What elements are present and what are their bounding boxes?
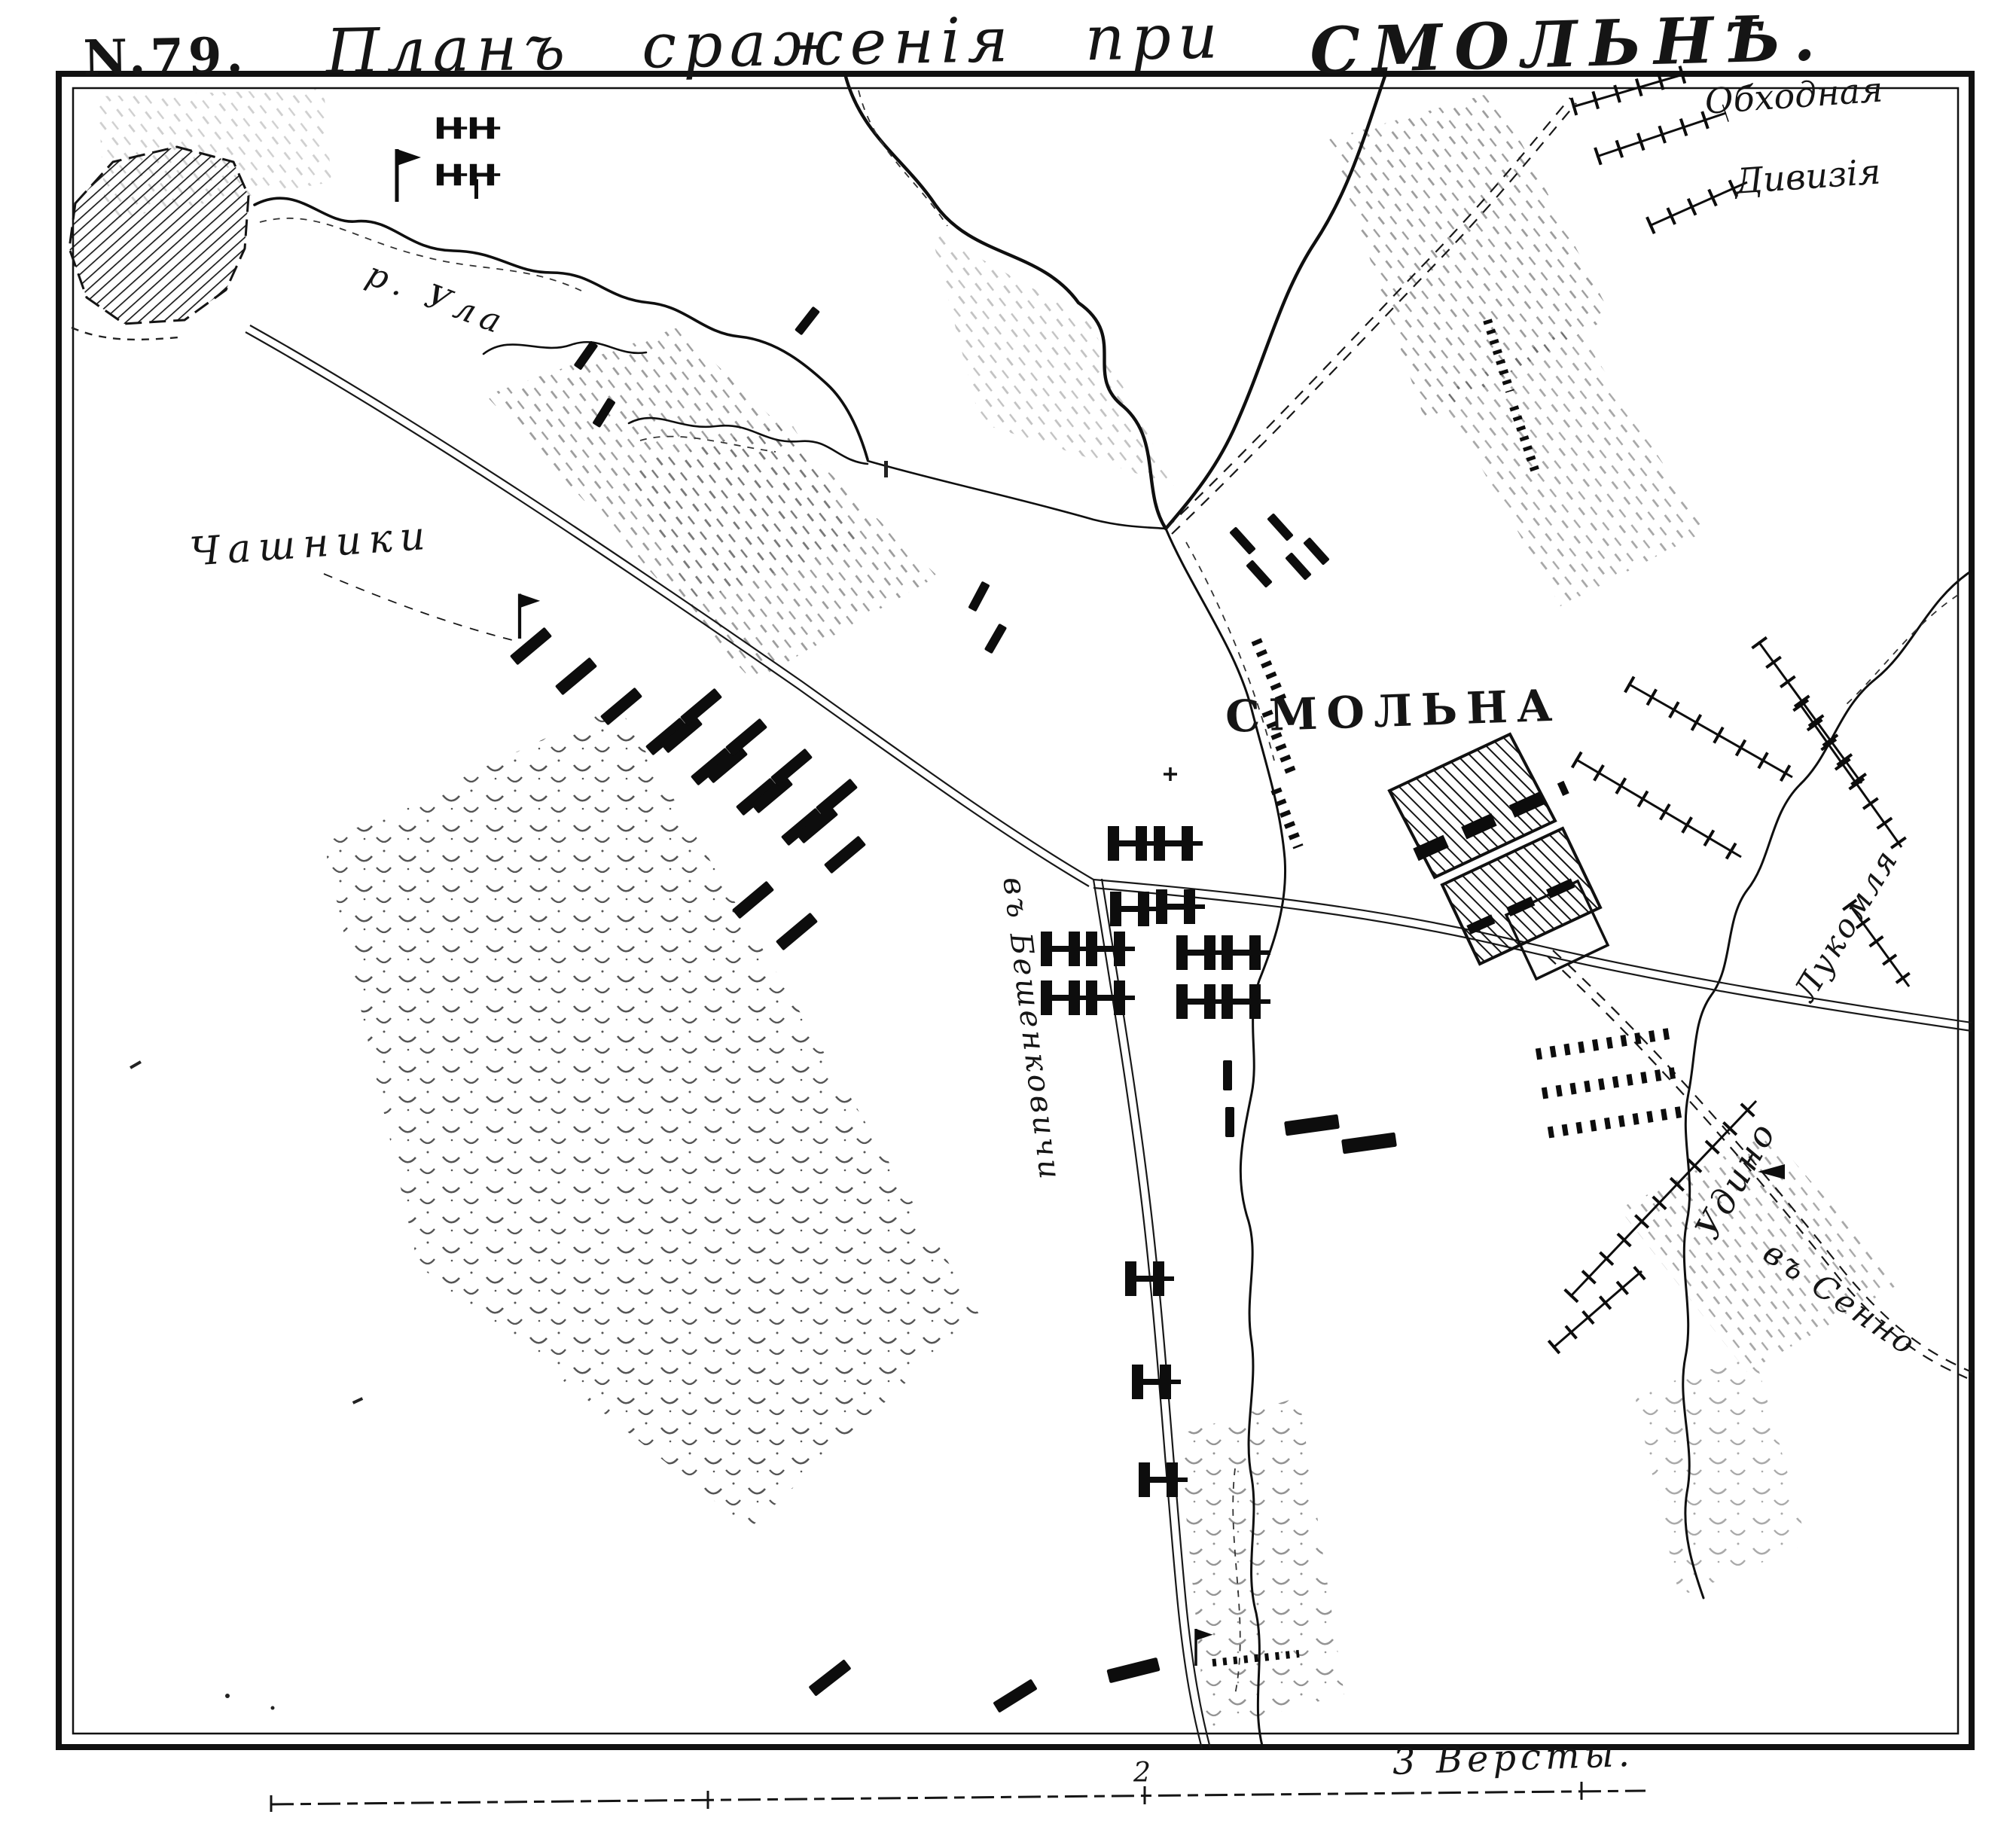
- infantry-battalions-center: [1041, 826, 1397, 1154]
- infantry-column-south: [1125, 1261, 1188, 1497]
- scale-mark-2: 2: [1133, 1758, 1151, 1789]
- map-number: N.79.: [83, 27, 248, 87]
- chashniki-town-area: [69, 147, 249, 340]
- scale-bar: [271, 1782, 1646, 1812]
- north-west-detachment: [397, 117, 500, 202]
- engraved-battle-map-page: N.79. Планъ сраженія при СМОЛЬНѢ. Обходн…: [0, 0, 2010, 1848]
- center-right-lines: [1575, 684, 1792, 857]
- scale-caption-versts: 3 Версты.: [1392, 1733, 1635, 1783]
- terrain-texture: [98, 89, 1899, 1732]
- map-title-place: СМОЛЬНѢ.: [1309, 0, 1829, 88]
